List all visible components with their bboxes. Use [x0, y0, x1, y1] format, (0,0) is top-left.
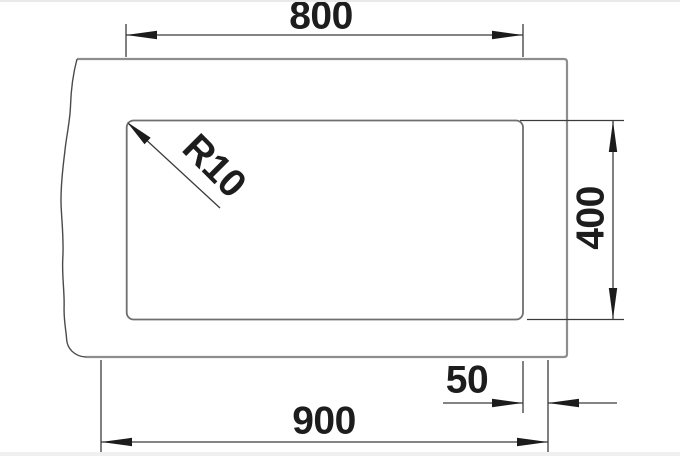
arrow-900-right-icon: [517, 438, 548, 446]
arrow-800-right-icon: [492, 31, 523, 39]
outer-outline: [77, 59, 567, 357]
top-edge-strip: [0, 0, 680, 2]
dim-label-top-width: 800: [289, 0, 353, 36]
dim-label-right-offset: 50: [446, 361, 488, 400]
dim-label-bottom-width: 900: [292, 402, 356, 441]
arrow-400-bottom-icon: [609, 288, 617, 319]
arrowheads: [101, 31, 617, 446]
arrow-50-left-icon: [492, 399, 523, 407]
dim-label-right-height: 400: [572, 186, 611, 250]
arrow-900-left-icon: [101, 438, 132, 446]
bottom-edge-strip: [0, 452, 680, 456]
arrow-50-right-icon: [548, 399, 579, 407]
break-line: [61, 59, 86, 357]
arrow-radius-leader-icon: [127, 122, 151, 144]
technical-drawing-canvas: 800 400 50 900 R10: [0, 0, 680, 456]
arrow-800-left-icon: [126, 31, 157, 39]
arrow-400-top-icon: [609, 121, 617, 152]
dimension-lines: [101, 24, 624, 452]
